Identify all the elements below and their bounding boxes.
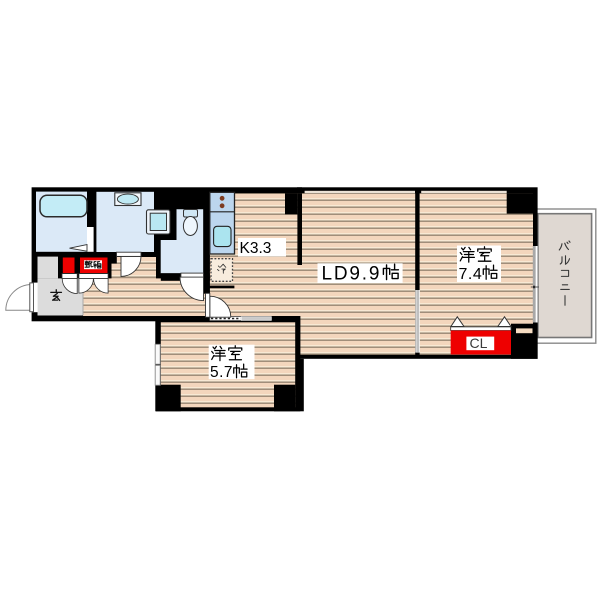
- svg-text:7.4: 7.4: [459, 266, 483, 283]
- svg-text:LD9.9: LD9.9: [322, 264, 382, 285]
- svg-text:K3.3: K3.3: [240, 240, 272, 257]
- svg-text:CL: CL: [470, 335, 488, 351]
- svg-text:5.7: 5.7: [210, 364, 233, 381]
